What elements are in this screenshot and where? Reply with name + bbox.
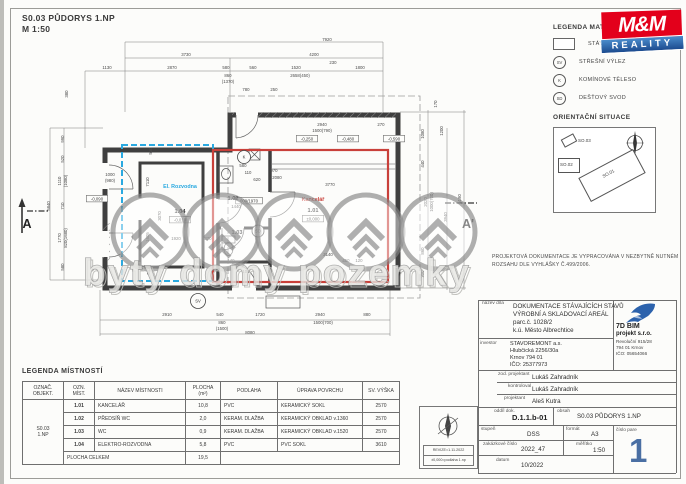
format-label: formát <box>566 427 580 432</box>
mm-reality-logo: M&M REALITY <box>599 10 685 59</box>
total-value: 19,5 <box>186 452 221 465</box>
dim-label: 1130 <box>102 65 112 70</box>
dim-label: 520 <box>60 155 65 163</box>
building-label: SO.02 <box>560 162 573 167</box>
dim-label: 3770 <box>325 182 335 187</box>
room-legend-section: LEGENDA MÍSTNOSTÍ OZNAČ. OBJEKT.OZN. MÍS… <box>22 368 400 465</box>
building-label: SO.03 <box>578 138 591 143</box>
room-table-cell: PŘEDSÍŇ WC <box>95 413 186 426</box>
sv-symbol-icon: SV <box>553 56 566 69</box>
investor-street: Hlubčická 2256/30a <box>510 348 558 354</box>
table-row: S0.03 1.NP1.01KANCELÁŘ10,8PVCKERAMICKÝ S… <box>23 400 400 413</box>
kontroloval-label: kontroloval <box>508 384 531 389</box>
dim-label: 540 <box>216 312 224 317</box>
table-row: 1.03WC0,9KERAM. DLAŽBAKERAMICKÝ OBKLAD v… <box>23 426 400 439</box>
company-name: 7D BIM <box>616 323 640 330</box>
room-table-cell: KERAMICKÝ OBKLAD v.1360 <box>278 413 363 426</box>
dim-label: 440 <box>420 160 425 168</box>
room-table-cell: KERAM. DLAŽBA <box>221 413 278 426</box>
room-table-cell: WC <box>95 426 186 439</box>
dim-label: 1080 <box>420 129 425 139</box>
company-addr2: 794 01 Krnov <box>616 345 643 350</box>
datum-value: 10/2022 <box>521 462 543 469</box>
room-table-cell: 5,8 <box>186 439 221 452</box>
regulation-note: PROJEKTOVÁ DOKUMENTACE JE VYPRACOVÁNA V … <box>492 253 680 269</box>
dim-label: 2940 <box>317 122 327 127</box>
mm-logo-name: M&M <box>618 12 666 38</box>
dim-label: 620 <box>253 177 261 182</box>
note-line2: ROZSAHU DLE VYHLÁŠKY Č.499/2006. <box>492 261 680 269</box>
dim-label: 580 <box>60 263 65 271</box>
dim-label: 1720 <box>255 312 265 317</box>
stupen-value: DSS <box>527 431 540 438</box>
dim-label: 860 <box>224 73 232 78</box>
dim-label: 580 <box>222 65 230 70</box>
dim-label: 1200 <box>439 126 444 136</box>
dim-label: 530 <box>148 147 153 155</box>
existing-construction-swatch <box>553 38 575 50</box>
dim-label: 1520 <box>291 65 301 70</box>
zod-projektant-label: zod. projektant <box>498 372 529 377</box>
room-name: El. Rozvodna <box>163 184 198 190</box>
room-table-cell: 2570 <box>363 400 400 413</box>
oddil-value: D.1.1.b-01 <box>512 413 547 422</box>
dim-label: 250 <box>270 87 278 92</box>
room-table-cell: PVC <box>221 439 278 452</box>
meritko-value: 1:50 <box>593 447 605 454</box>
drawing-sheet: S0.03 PŮDORYS 1.NP M 1:50 <box>0 0 686 484</box>
dim-label: 820(1680) <box>63 228 68 248</box>
dim-label: 170 <box>433 100 438 108</box>
legend-item: KKOMÍNOVÉ TĚLESO <box>553 71 683 89</box>
room-table-header: PLOCHA (m²) <box>186 382 221 400</box>
elevation-label: -0,480 <box>342 137 355 142</box>
room-table-cell: 3610 <box>363 439 400 452</box>
orientation-title: ORIENTAČNÍ SITUACE <box>553 114 663 121</box>
sd-symbol-icon: SD <box>553 92 566 105</box>
datum-label: datum <box>496 458 509 463</box>
revision-line2: ±0,000=podlaha 1.np <box>423 455 474 466</box>
room-table-cell: 0,9 <box>186 426 221 439</box>
room-table-header: NÁZEV MÍSTNOSTI <box>95 382 186 400</box>
room-table-header: PODLAHA <box>221 382 278 400</box>
dim-label: (1080) <box>63 174 68 187</box>
room-table-cell: KERAMICKÝ OBKLAD v.1520 <box>278 426 363 439</box>
legend-item-label: STŘEŠNÍ VÝLEZ <box>579 59 626 65</box>
dim-label: 710 <box>60 202 65 210</box>
room-table-cell: 2570 <box>363 426 400 439</box>
dim-label: 2910 <box>162 312 172 317</box>
sink-basin <box>222 169 231 180</box>
dim-label: 880 <box>363 312 371 317</box>
room-table: OZNAČ. OBJEKT.OZN. MÍST.NÁZEV MÍSTNOSTIP… <box>22 381 400 465</box>
orientation-map: SO.03SO.02SO.01 <box>553 127 656 213</box>
watermark: byty domy pozemky byty domy pozemky <box>83 195 475 295</box>
dim-label: 1500(790) <box>312 128 332 133</box>
room-table-cell: 2,0 <box>186 413 221 426</box>
room-table-cell: ELEKTRO-ROZVODNA <box>95 439 186 452</box>
dim-label: 1000 <box>105 172 115 177</box>
investor-name: STAVOREMONT a.s. <box>510 341 562 347</box>
dim-label: 780 <box>242 87 250 92</box>
legend-item-label: DEŠŤOVÝ SVOD <box>579 95 626 101</box>
room-legend-title: LEGENDA MÍSTNOSTÍ <box>22 368 400 375</box>
mm-logo-banner-text: REALITY <box>611 37 673 51</box>
dim-label: 1770 <box>57 233 62 243</box>
dim-label: 270 <box>377 122 385 127</box>
room-table-cell: 1.04 <box>64 439 95 452</box>
dim-label: 1110 <box>57 176 62 186</box>
format-value: A3 <box>591 431 599 438</box>
total-label: PLOCHA CELKEM <box>64 452 186 465</box>
total-row: PLOCHA CELKEM19,5 <box>23 452 400 465</box>
dim-label: 860 <box>218 320 226 325</box>
dim-label: 3730 <box>181 52 191 57</box>
room-table-header: SV. VÝŠKA <box>363 382 400 400</box>
dim-label: 230 <box>329 60 337 65</box>
legend-item-label: KOMÍNOVÉ TĚLESO <box>579 77 636 83</box>
north-arrow-icon <box>431 410 465 442</box>
room-table-cell: 2570 <box>363 413 400 426</box>
investor-label: investor <box>480 341 497 346</box>
revision-box: REVIZE=1.11.2022 ±0,000=podlaha 1.np <box>419 406 478 469</box>
orientation-section: ORIENTAČNÍ SITUACE SO.03SO.02SO.01 <box>553 114 663 121</box>
dim-label: 560 <box>249 65 257 70</box>
project-cadastre: k.ú. Město Albrechtice <box>513 327 574 334</box>
dim-label: (980) <box>105 178 116 183</box>
section-marker: A <box>22 217 31 231</box>
company-name2: projekt s.r.o. <box>616 331 652 337</box>
dim-label: 2658(450) <box>290 73 310 78</box>
dim-label: 2940 <box>315 312 325 317</box>
nazev-dila-label: název díla <box>482 301 504 306</box>
dim-label: 2080 <box>272 175 282 180</box>
dim-label: 380 <box>64 90 69 98</box>
obsah-label: obsah <box>557 409 570 414</box>
room-table-cell: 1.02 <box>64 413 95 426</box>
obsah-value: S0.03 PŮDORYS 1.NP <box>577 413 641 420</box>
room-table-header: OZN. MÍST. <box>64 382 95 400</box>
elevation-label: -0,090 <box>91 197 104 202</box>
zakazka-value: 2022_47 <box>521 446 545 453</box>
dim-label: 1800 <box>355 65 365 70</box>
7dbim-bird-icon <box>622 302 656 323</box>
elevation-label: -0,590 <box>388 137 401 142</box>
dim-label: 5840 <box>46 201 51 211</box>
total-empty <box>221 452 400 465</box>
building-shape-so03 <box>561 133 578 148</box>
projektant-label: projektant <box>504 396 525 401</box>
legend-item: SDDEŠŤOVÝ SVOD <box>553 89 683 107</box>
room-table-cell: 10,8 <box>186 400 221 413</box>
k-symbol-icon: K <box>553 74 566 87</box>
table-row: 1.02PŘEDSÍŇ WC2,0KERAM. DLAŽBAKERAMICKÝ … <box>23 413 400 426</box>
dim-label: 7920 <box>322 37 332 42</box>
zakazka-label: zakázkové číslo <box>483 442 517 447</box>
room-table-header: OZNAČ. OBJEKT. <box>23 382 64 400</box>
dim-label: 7110 <box>145 177 150 187</box>
dim-label: (1370) <box>222 79 235 84</box>
dim-label: 4200 <box>309 52 319 57</box>
investor-city: Krnov 794 01 <box>510 355 543 361</box>
symbol-letter: K <box>243 155 246 160</box>
dim-label: 990 <box>60 135 65 143</box>
copy-number: 1 <box>629 434 647 467</box>
meritko-label: měřítko <box>576 442 592 447</box>
dim-label: (1500) <box>216 326 229 331</box>
room-table-cell: 1.03 <box>64 426 95 439</box>
room-table-cell: 1.01 <box>64 400 95 413</box>
building-shape-so01 <box>578 149 645 202</box>
dim-label: 970 <box>270 168 278 173</box>
mm-logo-banner: REALITY <box>600 35 685 54</box>
project-name-line2: VÝROBNÍ A SKLADOVACÍ AREÁL <box>513 311 608 318</box>
room-table-cell: KERAMICKÝ SOKL <box>278 400 363 413</box>
investor-ico: IČO: 25377973 <box>510 362 547 368</box>
room-table-cell: PVC SOKL <box>278 439 363 452</box>
room-table-header: ÚPRAVA POVRCHU <box>278 382 363 400</box>
stupen-label: stupeň <box>481 427 495 432</box>
room-table-cell: PVC <box>221 400 278 413</box>
dim-label: 110 <box>245 170 252 175</box>
object-group-cell: S0.03 1.NP <box>23 400 64 465</box>
dim-label: 8080 <box>245 330 255 335</box>
company-addr1: Revoluční 915/28 <box>616 339 652 344</box>
company-ico: IČO: 05654066 <box>616 351 647 356</box>
dim-label: 1500(700) <box>313 320 333 325</box>
kontroloval-value: Lukáš Zahradník <box>532 386 578 393</box>
dim-label: 2870 <box>167 65 177 70</box>
watermark-text: byty domy pozemky <box>83 252 471 293</box>
project-name-line1: DOKUMENTACE STÁVAJÍCÍCH STAVŮ <box>513 303 624 310</box>
room-table-cell: KANCELÁŘ <box>95 400 186 413</box>
elevation-label: -0,250 <box>301 137 314 142</box>
zod-projektant-value: Lukáš Zahradník <box>532 374 578 381</box>
table-row: 1.04ELEKTRO-ROZVODNA5,8PVCPVC SOKL3610 <box>23 439 400 452</box>
projektant-value: Aleš Kutra <box>532 398 561 405</box>
note-line1: PROJEKTOVÁ DOKUMENTACE JE VYPRACOVÁNA V … <box>492 253 680 261</box>
project-parcel: parc.č. 1028/2 <box>513 319 552 326</box>
room-table-cell: KERAM. DLAŽBA <box>221 426 278 439</box>
symbol-letter: SV <box>195 299 201 304</box>
